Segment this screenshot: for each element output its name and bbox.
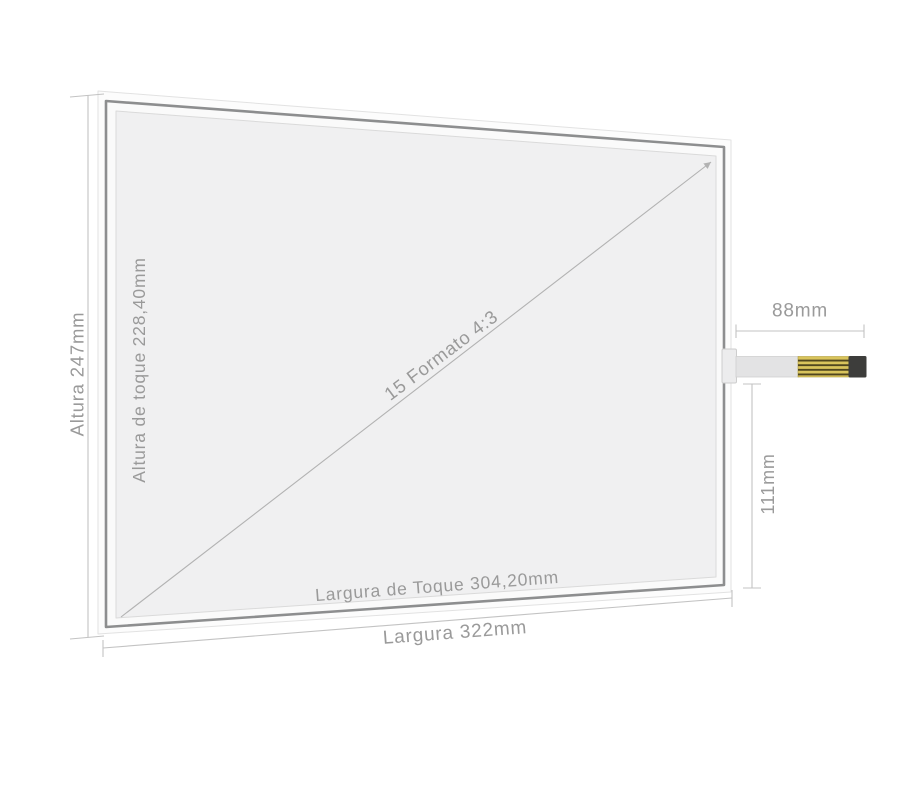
label-tail-offset: 111mm — [758, 453, 778, 514]
diagram-canvas: Altura 247mm Altura de toque 228,40mm 15… — [0, 0, 909, 800]
touch-panel-dimension-diagram: Altura 247mm Altura de toque 228,40mm 15… — [0, 0, 909, 800]
fpc-cable — [722, 349, 867, 383]
cable-black-tip — [849, 356, 867, 378]
label-width-outer: Largura 322mm — [382, 617, 528, 649]
label-height-outer: Altura 247mm — [67, 312, 88, 437]
label-tail-length: 88mm — [772, 301, 828, 322]
label-height-touch: Altura de toque 228,40mm — [129, 257, 149, 482]
dimension-tail-length — [736, 325, 864, 339]
cable-connector-block — [722, 349, 737, 383]
cable-gold-contacts — [798, 357, 849, 378]
cable-ribbon — [736, 357, 799, 378]
